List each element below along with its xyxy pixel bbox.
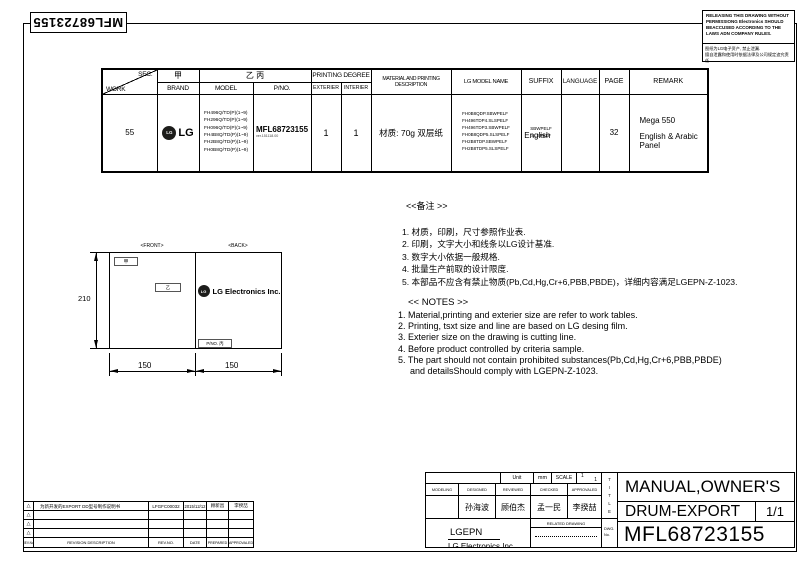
- tb-name-designed: 孙海波: [458, 495, 496, 519]
- vdim-arrow-top: [94, 253, 98, 261]
- tb-signature-modeling: [425, 495, 459, 519]
- cell-page: 32: [599, 94, 629, 172]
- notes-en-item: 5. The part should not contain prohibite…: [398, 355, 743, 366]
- lg-model-line: FH496TDP3.SBWPELF: [462, 125, 510, 132]
- lg-electronics-text: LG Electronics Inc.: [213, 287, 281, 296]
- warning-text-en: RELEASING THIS DRAWING WITHOUT PERMISSIO…: [706, 13, 789, 36]
- rev-footer-prepared-label: PREPARED: [206, 537, 229, 548]
- title-vertical-letter: T: [602, 492, 617, 500]
- lg-model-line: FH496TDP4.SLSPELF: [462, 118, 510, 125]
- tb-company: LGEPN LG Electronics Inc.: [425, 518, 531, 548]
- tb-name-approvaled: 李揆喆: [567, 495, 602, 519]
- vdim-ext-bottom: [90, 348, 109, 349]
- remark-line-2: English & Arabic: [640, 132, 708, 141]
- model-line: FH4B8Q/TD(P)(1~9): [204, 132, 248, 139]
- header-remark: REMARK: [629, 69, 708, 94]
- notes-en-item: 3. Exterier size on the drawing is cutti…: [398, 332, 743, 343]
- hdim-arrow-3: [196, 369, 204, 373]
- tb-name-checked: 孟一民: [530, 495, 568, 519]
- tb-dwg-no-value: MFL68723155: [617, 521, 795, 548]
- related-drawing-dotted-line: [535, 536, 597, 537]
- title-vertical-letter: T: [602, 476, 617, 484]
- back-label: <BACK>: [218, 243, 258, 249]
- tb-title-line1: MANUAL,OWNER'S: [617, 472, 795, 502]
- notes-cn-item: 1. 材质，印刷，尺寸参照作业表.: [402, 226, 732, 238]
- header-printing-degree: PRINTING DEGREE: [311, 69, 371, 82]
- header-exterier: EXTERIER: [311, 82, 341, 94]
- title-block: Unit mm SCALE 1 1 MODELING DESIGNED REVI…: [425, 472, 795, 548]
- lg-model-line: FH0B8QDP.SBWPELF: [462, 111, 510, 118]
- front-label: <FRONT>: [132, 243, 172, 249]
- cell-material: 材质: 70g 双层纸: [371, 94, 451, 172]
- tb-dwg-no-label: DWG. No.: [601, 518, 618, 548]
- notes-en: << NOTES >> 1. Material,printing and ext…: [398, 297, 743, 377]
- notes-cn-item: 4. 批量生产前取的设计限度.: [402, 263, 732, 275]
- notes-cn-item: 5. 本部品不应含有禁止物质(Pb,Cd,Hg,Cr+6,PBB,PBDE)，详…: [402, 276, 732, 288]
- tb-title-vertical: T I T L E: [601, 472, 618, 519]
- hdim-value-right: 150: [225, 361, 238, 370]
- rev-footer-date-label: DATE: [183, 537, 207, 548]
- cell-exterier: 1: [311, 94, 341, 172]
- lg-logo-icon: LG: [162, 126, 176, 140]
- header-lg-model-name: LG MODEL NAME: [451, 69, 521, 94]
- vdim-ext-top: [90, 252, 109, 253]
- jia-placeholder-box: 甲: [114, 257, 138, 266]
- company-full: LG Electronics Inc.: [448, 542, 530, 548]
- pno-placeholder-box: P/NO. 丙: [198, 339, 232, 348]
- rev-footer-description-label: REVISION DESCRIPTION: [33, 537, 149, 548]
- model-line: FH0B8Q/TD(P)(1~9): [204, 147, 248, 154]
- header-yi-bing: 乙 丙: [199, 69, 311, 82]
- cell-models: FH496Q/TD(P)(1~9) FH296Q/TD(P)(1~9) FH09…: [199, 94, 253, 172]
- scale-numerator: 1: [581, 473, 584, 479]
- header-material: MATERIAL AND PRINTING DESCRIPTION: [371, 69, 451, 94]
- pno-placeholder-text: P/NO. 丙: [206, 341, 223, 347]
- rotated-pno-box: MFL68723155: [30, 12, 127, 33]
- lg-model-line: FH2B8TDP.SBWPELF: [462, 139, 510, 146]
- tb-related-drawing: RELATED DRAWING: [530, 518, 602, 548]
- header-language: LANGUAGE: [561, 69, 599, 94]
- vdim-line: [96, 253, 97, 348]
- related-drawing-label: RELATED DRAWING: [531, 519, 601, 528]
- notes-en-item: 1. Material,printing and exterier size a…: [398, 310, 743, 321]
- title-vertical-letter: E: [602, 508, 617, 516]
- cell-remark: Mega 550 English & Arabic Panel: [629, 94, 708, 172]
- yi-placeholder-box: 乙: [155, 283, 181, 292]
- yi-placeholder-text: 乙: [166, 285, 171, 291]
- back-panel-logo: LG LG Electronics Inc.: [197, 284, 281, 298]
- rev-footer-number-label: REV.NO.: [148, 537, 184, 548]
- revision-table: △ 为新开发的EXPORT DD型号制作说明书 LFGFC00032 2015/…: [23, 501, 254, 548]
- notes-cn-title: <<备注 >>: [402, 199, 732, 212]
- rev-footer-approved-label: APPROVALED: [228, 537, 254, 548]
- lg-wordmark: LG: [178, 127, 193, 139]
- lg-model-line: FH2B8TDP5.SLSPELF: [462, 146, 510, 153]
- cell-interier: 1: [341, 94, 371, 172]
- title-vertical-letter: I: [602, 484, 617, 492]
- jia-placeholder-text: 甲: [124, 259, 129, 265]
- cell-work: 55: [102, 94, 157, 172]
- notes-en-title: << NOTES >>: [398, 297, 743, 308]
- header-sec-work: SEC. WORK: [102, 69, 157, 94]
- spec-table: SEC. WORK 甲 乙 丙 PRINTING DEGREE MATERIAL…: [101, 68, 709, 173]
- pno-value: MFL68723155: [256, 125, 308, 134]
- model-line: FH2B8Q/TD(P)(1~9): [204, 139, 248, 146]
- header-work: WORK: [106, 86, 125, 93]
- vdim-arrow-bottom: [94, 340, 98, 348]
- notes-en-item-cont: and detailsShould comply with LGEPN-Z-10…: [398, 366, 743, 377]
- front-label-text: <FRONT>: [140, 243, 163, 249]
- model-line: FH496Q/TD(P)(1~9): [204, 110, 248, 117]
- header-page: PAGE: [599, 69, 629, 94]
- hdim-arrow-1: [110, 369, 118, 373]
- warning-text-cn-2: 擅自泄露和使用时依据法律及公司规定追究责任: [705, 52, 792, 65]
- company-short: LGEPN: [448, 527, 500, 540]
- hdim-arrow-2: [187, 369, 195, 373]
- back-label-text: <BACK>: [228, 243, 247, 249]
- lg-logo-icon: LG: [198, 285, 210, 297]
- cell-lg-models: FH0B8QDP.SBWPELF FH496TDP4.SLSPELF FH496…: [451, 94, 521, 172]
- cell-language: [561, 94, 599, 172]
- hdim-arrow-4: [273, 369, 281, 373]
- cell-brand: LG LG: [157, 94, 199, 172]
- model-line: FH296Q/TD(P)(1~9): [204, 117, 248, 124]
- drawing-sheet: MFL68723155 RELEASING THIS DRAWING WITHO…: [0, 0, 802, 567]
- header-jia: 甲: [157, 69, 199, 82]
- suffix-overlay: English: [524, 130, 550, 141]
- vdim-value: 210: [78, 294, 91, 303]
- lg-logo-symbol: LG: [201, 289, 207, 294]
- header-suffix: SUFFIX: [521, 69, 561, 94]
- header-sec: SEC.: [138, 71, 152, 78]
- remark-line-3: Panel: [640, 141, 708, 150]
- header-model: MODEL: [199, 82, 253, 94]
- remark-line-1: Mega 550: [640, 116, 708, 125]
- lg-logo-symbol: LG: [166, 130, 172, 135]
- header-interier: INTERIER: [341, 82, 371, 94]
- warning-box-cn: 图纸为LG电子资产, 禁止泄漏. 擅自泄露和使用时依据法律及公司规定追究责任: [702, 43, 795, 62]
- title-vertical-letter: L: [602, 500, 617, 508]
- notes-en-item: 2. Printing, tsxt size and line are base…: [398, 321, 743, 332]
- cell-pno: MFL68723155 ver.151118.00: [253, 94, 311, 172]
- rotated-pno-text: MFL68723155: [33, 15, 123, 30]
- pno-version: ver.151118.00: [256, 134, 308, 138]
- notes-cn-item: 3. 数字大小依据一般规格.: [402, 251, 732, 263]
- cell-suffix: SBWPELF SLSPELF English: [521, 94, 561, 172]
- tb-name-reviewed: 顾伯杰: [495, 495, 531, 519]
- warning-box: RELEASING THIS DRAWING WITHOUT PERMISSIO…: [702, 10, 795, 62]
- lg-model-line: FH0B8QDP5.SLSPELF: [462, 132, 510, 139]
- dwg-label-line2: No.: [604, 533, 617, 539]
- tb-title-line2: DRUM-EXPORT: [617, 501, 756, 522]
- notes-cn-item: 2. 印刷，文字大小和线条以LG设计基准.: [402, 238, 732, 250]
- tb-sheet-number: 1/1: [755, 501, 795, 522]
- panel-divider: [195, 253, 196, 348]
- hdim-value-left: 150: [138, 361, 151, 370]
- notes-en-item: 4. Before product controlled by criteria…: [398, 344, 743, 355]
- header-brand: BRAND: [157, 82, 199, 94]
- hdim-ext-right: [281, 353, 282, 376]
- model-line: FH096Q/TD(P)(1~9): [204, 125, 248, 132]
- notes-cn: <<备注 >> 1. 材质，印刷，尺寸参照作业表. 2. 印刷，文字大小和线条以…: [402, 199, 732, 288]
- header-pno: P/NO.: [253, 82, 311, 94]
- warning-box-en: RELEASING THIS DRAWING WITHOUT PERMISSIO…: [702, 10, 795, 44]
